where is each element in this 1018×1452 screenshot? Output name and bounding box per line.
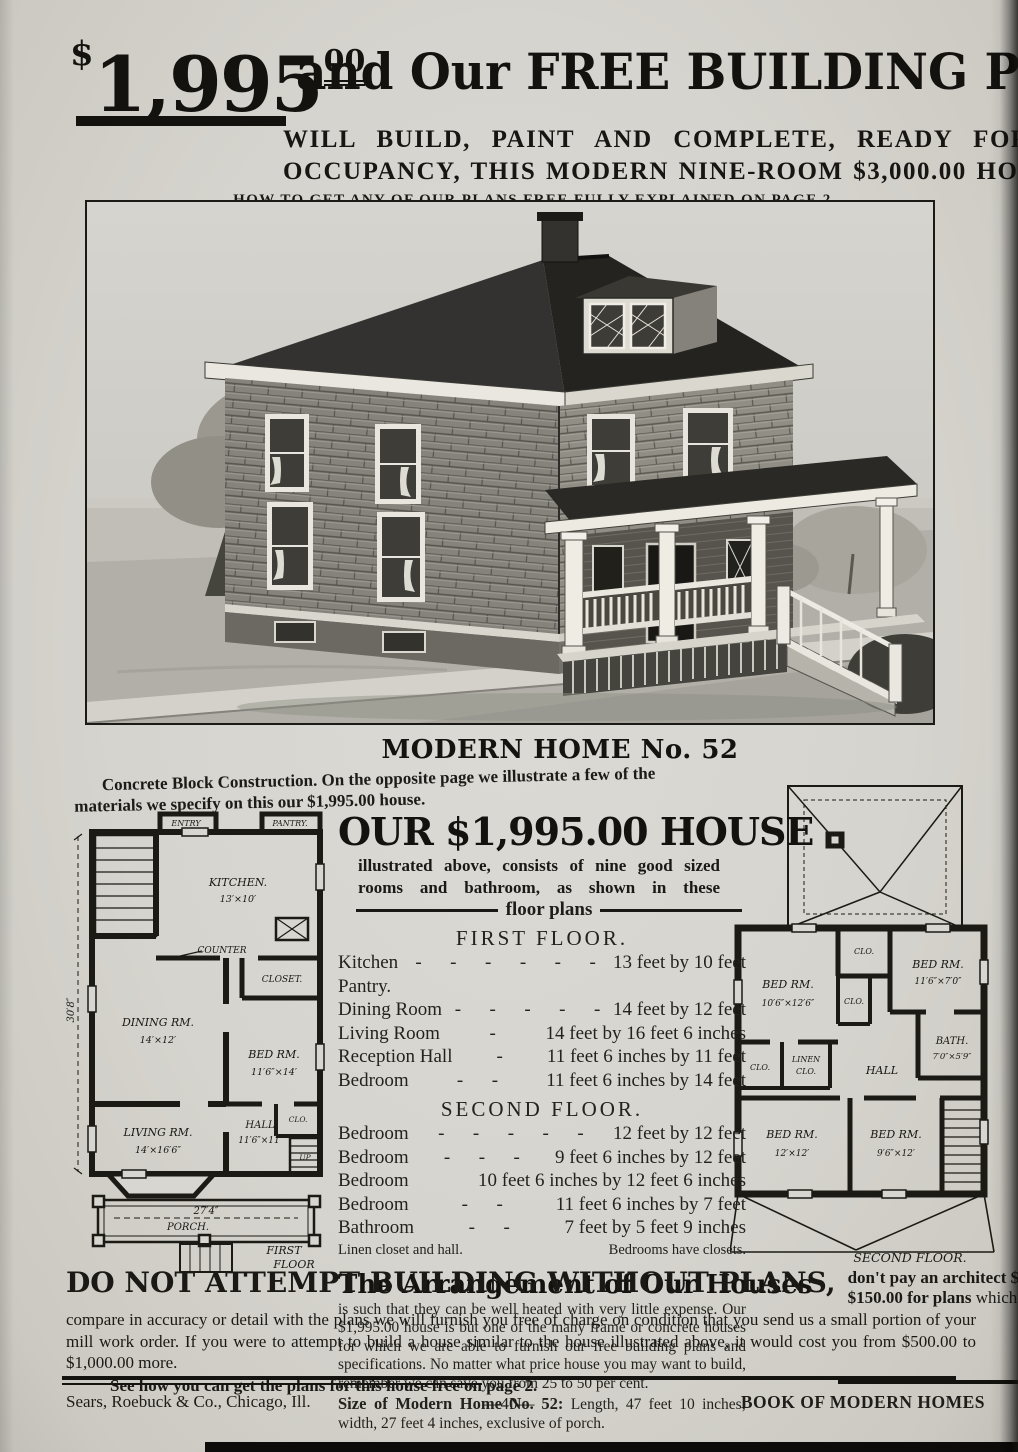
- scan-edge-left: [0, 0, 14, 1452]
- room-row: Bedroom - - - 9 feet 6 inches by 12 feet: [338, 1146, 746, 1170]
- room-dashes: - -: [409, 1193, 556, 1217]
- divider-rule-right: [600, 909, 742, 912]
- subheadline-line2: OCCUPANCY, THIS MODERN NINE-ROOM $3,000.…: [283, 156, 987, 188]
- footer: Sears, Roebuck & Co., Chicago, Ill. —40—…: [0, 1392, 1018, 1416]
- plan-label-clo-top: CLO.: [854, 947, 874, 956]
- footer-rule-thin: [62, 1383, 482, 1385]
- plan-label-bed-bm: BED RM.: [869, 1128, 921, 1141]
- catalog-page: $1,99500 and Our FREE BUILDING PLANS WIL…: [0, 0, 1018, 1452]
- room-dashes: - - - - -: [409, 1122, 613, 1146]
- scan-edge-right: [990, 0, 1018, 1452]
- room-row: Bedroom - - 11 feet 6 inches by 7 feet: [338, 1193, 746, 1217]
- room-name: Bedroom: [338, 1122, 409, 1146]
- subheadline: WILL BUILD, PAINT AND COMPLETE, READY FO…: [283, 124, 987, 188]
- room-dashes: -: [440, 1022, 546, 1046]
- plan-label-bed-dim: 11′6″×14′: [251, 1067, 298, 1078]
- footnote-right: Bedrooms have closets.: [609, 1240, 746, 1260]
- room-row: Bedroom - - 11 feet 6 inches by 14 feet: [338, 1069, 746, 1093]
- room-row: Reception Hall - 11 feet 6 inches by 11 …: [338, 1045, 746, 1069]
- plan-label-linen1: LINEN: [791, 1055, 821, 1064]
- room-dim: 11 feet 6 inches by 11 feet: [547, 1045, 746, 1069]
- room-row: Bedroom - - - - - 12 feet by 12 feet: [338, 1122, 746, 1146]
- room-row: Bedroom 10 feet 6 inches by 12 feet 6 in…: [338, 1169, 746, 1193]
- modern-home-title: MODERN HOME No. 52: [102, 735, 1018, 765]
- headline-text: and Our FREE BUILDING PLANS: [296, 42, 1018, 101]
- footer-book-title: BOOK OF MODERN HOMES: [741, 1392, 985, 1413]
- room-name: Reception Hall: [338, 1045, 453, 1069]
- room-dim: 11 feet 6 inches by 14 feet: [546, 1069, 746, 1093]
- room-dim: 10 feet 6 inches by 12 feet 6 inches: [478, 1169, 746, 1193]
- plan-label-clo: CLO.: [289, 1115, 308, 1124]
- plan-label-bed: BED RM.: [247, 1048, 299, 1061]
- room-name: Pantry.: [338, 975, 391, 999]
- plan-label-clo-mid: CLO.: [844, 997, 864, 1006]
- room-dashes: - -: [414, 1216, 565, 1240]
- plan-label-living-dim: 14′×16′6″: [135, 1145, 181, 1156]
- plan-label-pantry: PANTRY.: [271, 819, 307, 828]
- room-dim: 14 feet by 12 feet: [613, 998, 746, 1022]
- plan-caption-first: FIRST: [265, 1244, 303, 1257]
- first-floor-heading: FIRST FLOOR.: [338, 926, 746, 951]
- plan-label-bed-bl: BED RM.: [765, 1128, 817, 1141]
- offer-subline1: illustrated above, consists of nine good…: [358, 856, 720, 876]
- room-dim: 13 feet by 10 feet: [613, 951, 746, 975]
- warning-body: compare in accuracy or detail with the p…: [66, 1309, 976, 1374]
- room-dim: 12 feet by 12 feet: [613, 1122, 746, 1146]
- room-dashes: - - - - - -: [398, 951, 613, 975]
- plan-label-entry: ENTRY: [170, 819, 201, 828]
- offer-title: OUR $1,995.00 HOUSE: [338, 810, 746, 854]
- room-name: Living Room: [338, 1022, 440, 1046]
- room-row: Pantry.: [338, 975, 746, 999]
- plan-label-linen2: CLO.: [796, 1067, 816, 1076]
- room-dashes: -: [453, 1045, 547, 1069]
- house-illustration: [87, 202, 933, 723]
- house-illustration-frame: [85, 200, 935, 725]
- room-dim: 7 feet by 5 feet 9 inches: [565, 1216, 746, 1240]
- footnote-left: Linen closet and hall.: [338, 1240, 463, 1260]
- offer-subline2: rooms and bathroom, as shown in these: [358, 878, 720, 898]
- footer-rule: [62, 1376, 956, 1380]
- plan-label-dining: DINING RM.: [121, 1016, 194, 1029]
- price-underline: [76, 116, 286, 126]
- warning-heading: DO NOT ATTEMPT BUILDING WITHOUT PLANS, d…: [66, 1266, 976, 1308]
- plan-label-hall-dim: 11′6″×11′: [238, 1136, 282, 1146]
- warning-right-line2-bold: $150.00 for plans: [848, 1288, 972, 1307]
- dollar-sign: $: [70, 34, 94, 74]
- plan-label-porch: PORCH.: [166, 1222, 209, 1233]
- room-dim: 9 feet 6 inches by 12 feet: [555, 1146, 746, 1170]
- plan-label-bed-tr-dim: 11′6″×7′0″: [915, 977, 963, 987]
- plan-label-kitchen-dim: 13′×10′: [220, 894, 257, 905]
- room-row: Bathroom - - 7 feet by 5 feet 9 inches: [338, 1216, 746, 1240]
- room-dim: 14 feet by 16 feet 6 inches: [546, 1022, 746, 1046]
- warning-lead: DO NOT ATTEMPT BUILDING WITHOUT PLANS,: [66, 1266, 836, 1300]
- plan-label-bed-bm-dim: 9′6″×12′: [877, 1149, 915, 1159]
- plan-caption-second-floor: SECOND FLOOR.: [853, 1250, 966, 1265]
- plan-label-hall2: HALL: [865, 1064, 898, 1077]
- room-dim: 11 feet 6 inches by 7 feet: [556, 1193, 746, 1217]
- plan-label-closet: CLOSET.: [262, 975, 303, 985]
- room-name: Bedroom: [338, 1169, 409, 1193]
- plan-label-living: LIVING RM.: [123, 1126, 193, 1139]
- plan-label-bed-tr: BED RM.: [911, 958, 963, 971]
- plan-label-side-dim: 30′8″: [66, 997, 77, 1022]
- room-dashes: - - -: [409, 1146, 555, 1170]
- plan-label-clo-left: CLO.: [750, 1063, 770, 1072]
- plan-label-kitchen: KITCHEN.: [208, 876, 267, 889]
- plan-label-up: UP: [299, 1153, 311, 1162]
- room-row: Kitchen - - - - - - 13 feet by 10 feet: [338, 951, 746, 975]
- room-name: Dining Room: [338, 998, 442, 1022]
- room-dashes: - -: [409, 1069, 547, 1093]
- first-floor-plan: ENTRY PANTRY. KITCHEN. 13′×10′ COUNTER C…: [62, 806, 340, 1282]
- room-row: Living Room - 14 feet by 16 feet 6 inche…: [338, 1022, 746, 1046]
- subheadline-line1: WILL BUILD, PAINT AND COMPLETE, READY FO…: [283, 124, 987, 156]
- plan-label-bed-tl-dim: 10′6″×12′6″: [762, 999, 815, 1009]
- plan-label-counter: COUNTER: [197, 946, 246, 956]
- plan-label-bath: BATH.: [935, 1036, 969, 1047]
- room-dashes: - - - - -: [442, 998, 613, 1022]
- room-name: Kitchen: [338, 951, 398, 975]
- plan-label-bed-tl: BED RM.: [761, 978, 813, 991]
- chimney: [542, 216, 578, 262]
- room-row: Dining Room - - - - - 14 feet by 12 feet: [338, 998, 746, 1022]
- plan-label-bed-bl-dim: 12′×12′: [775, 1149, 810, 1159]
- plan-label-dining-dim: 14′×12′: [140, 1035, 177, 1046]
- divider-rule-left: [356, 909, 498, 912]
- room-name: Bedroom: [338, 1069, 409, 1093]
- room-name: Bedroom: [338, 1146, 409, 1170]
- plan-label-hall: HALL: [244, 1120, 275, 1131]
- divider-label: floor plans: [498, 899, 601, 921]
- floor-plans-divider: floor plans: [356, 899, 742, 921]
- room-name: Bathroom: [338, 1216, 414, 1240]
- closet-footnote: Linen closet and hall. Bedrooms have clo…: [338, 1240, 746, 1260]
- plan-label-bath-dim: 7′0″×5′9″: [933, 1052, 973, 1062]
- room-name: Bedroom: [338, 1193, 409, 1217]
- scan-edge-bottom: [205, 1442, 1018, 1452]
- second-floor-heading: SECOND FLOOR.: [338, 1097, 746, 1122]
- plan-label-porch-dim: 27′4″: [192, 1206, 218, 1217]
